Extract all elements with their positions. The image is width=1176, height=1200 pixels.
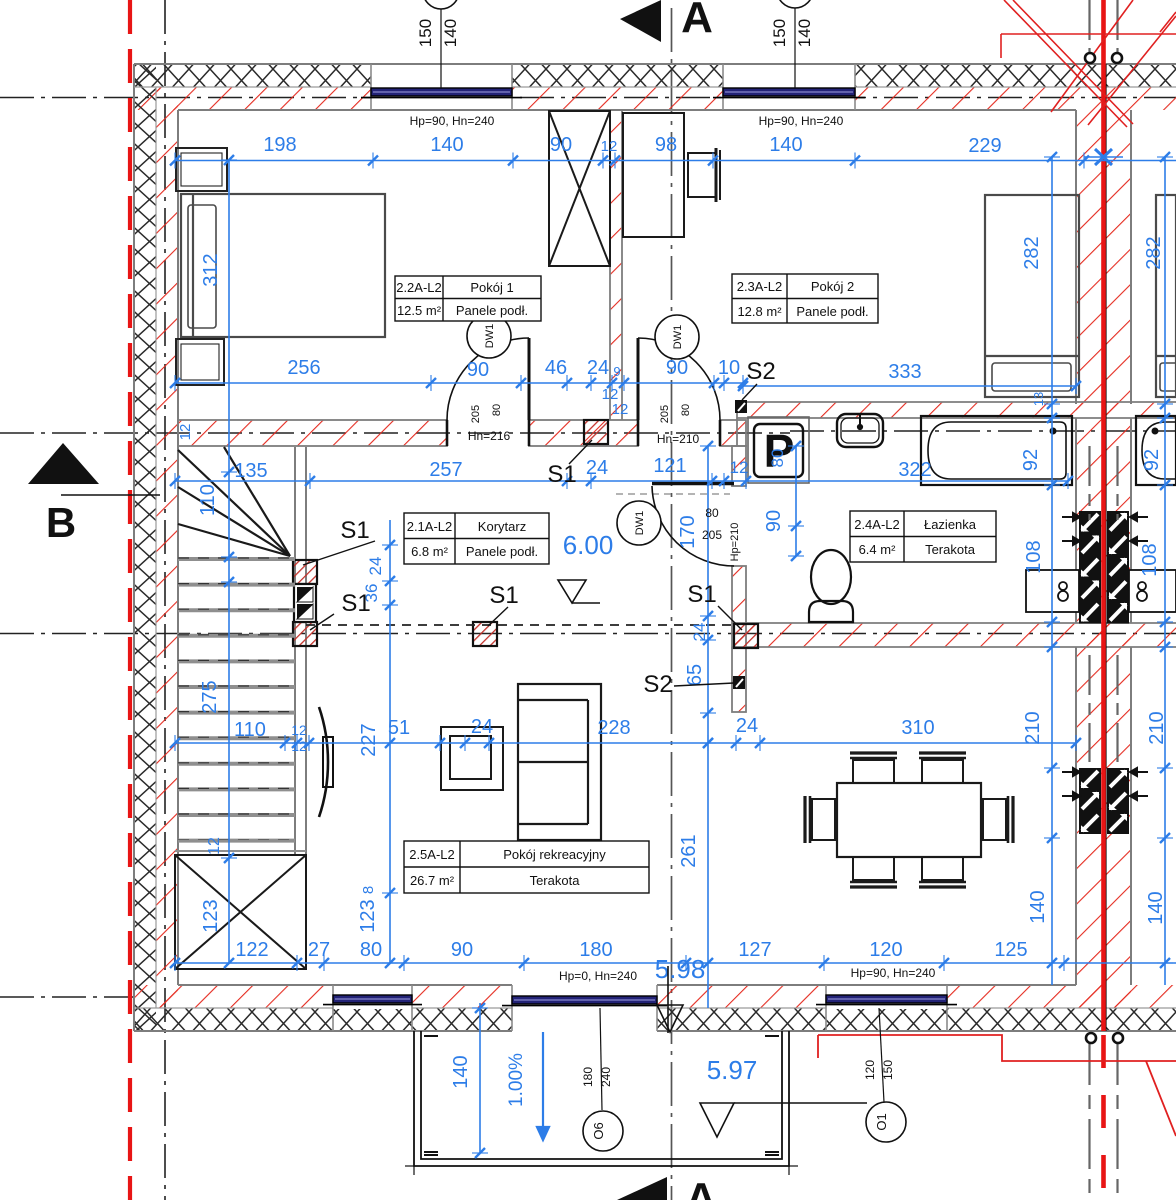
svg-text:90: 90: [763, 510, 785, 532]
svg-text:90: 90: [467, 359, 489, 381]
svg-text:Hp=210: Hp=210: [729, 523, 741, 562]
svg-text:Panele podł.: Panele podł.: [456, 303, 528, 318]
svg-text:98: 98: [655, 134, 677, 156]
svg-text:24: 24: [690, 623, 709, 642]
svg-text:DW1: DW1: [634, 511, 646, 535]
svg-text:150: 150: [770, 19, 789, 47]
svg-text:198: 198: [263, 134, 296, 156]
svg-text:2.5A-L2: 2.5A-L2: [409, 847, 455, 862]
svg-text:333: 333: [888, 361, 921, 383]
svg-text:Terakota: Terakota: [530, 873, 581, 888]
svg-text:24: 24: [587, 357, 609, 379]
svg-text:140: 140: [795, 19, 814, 47]
svg-text:Hn=210: Hn=210: [657, 432, 700, 446]
svg-text:229: 229: [968, 135, 1001, 157]
svg-text:275: 275: [199, 680, 221, 713]
svg-text:DW1: DW1: [672, 325, 684, 349]
svg-text:12: 12: [206, 837, 223, 855]
svg-text:O6: O6: [591, 1122, 606, 1139]
svg-text:A: A: [681, 0, 713, 42]
svg-text:150: 150: [416, 19, 435, 47]
svg-text:310: 310: [901, 717, 934, 739]
svg-text:92: 92: [1141, 449, 1163, 471]
svg-text:A: A: [685, 1174, 717, 1200]
svg-text:140: 140: [441, 19, 460, 47]
svg-text:121: 121: [653, 455, 686, 477]
svg-text:12: 12: [291, 722, 307, 738]
svg-text:205: 205: [702, 528, 722, 542]
svg-text:24: 24: [586, 457, 608, 479]
svg-text:80: 80: [491, 404, 503, 416]
svg-text:180: 180: [579, 939, 612, 961]
svg-text:282: 282: [1143, 236, 1165, 269]
svg-text:12: 12: [612, 401, 629, 418]
svg-text:12: 12: [601, 138, 618, 155]
svg-text:Pokój rekreacyjny: Pokój rekreacyjny: [503, 847, 606, 862]
svg-text:92: 92: [1020, 449, 1042, 471]
svg-text:DW1: DW1: [484, 324, 496, 348]
svg-text:Korytarz: Korytarz: [478, 519, 526, 534]
svg-text:125: 125: [994, 939, 1027, 961]
svg-text:205: 205: [470, 405, 482, 423]
svg-text:140: 140: [769, 134, 802, 156]
svg-text:282: 282: [1021, 236, 1043, 269]
svg-text:170: 170: [677, 515, 699, 548]
svg-text:140: 140: [450, 1055, 472, 1088]
svg-text:90: 90: [666, 357, 688, 379]
svg-text:Panele podł.: Panele podł.: [466, 544, 538, 559]
svg-text:5.98: 5.98: [655, 954, 706, 984]
svg-text:6.00: 6.00: [563, 530, 614, 560]
svg-text:80: 80: [360, 939, 382, 961]
svg-text:S2: S2: [643, 671, 672, 698]
svg-text:12: 12: [291, 738, 307, 754]
svg-text:S1: S1: [340, 517, 369, 544]
svg-text:13: 13: [1031, 392, 1046, 406]
svg-text:S1: S1: [341, 590, 370, 617]
svg-text:2.2A-L2: 2.2A-L2: [396, 280, 442, 295]
svg-text:S1: S1: [547, 461, 576, 488]
svg-text:24: 24: [471, 716, 493, 738]
svg-text:140: 140: [1145, 891, 1167, 924]
svg-text:80: 80: [768, 449, 787, 468]
svg-text:261: 261: [678, 834, 700, 867]
svg-text:120: 120: [869, 939, 902, 961]
svg-text:108: 108: [1139, 543, 1161, 576]
svg-text:5.97: 5.97: [707, 1055, 758, 1085]
svg-text:140: 140: [430, 134, 463, 156]
svg-text:46: 46: [545, 357, 567, 379]
svg-text:312: 312: [200, 253, 222, 286]
svg-text:12: 12: [730, 458, 749, 477]
svg-text:90: 90: [550, 134, 572, 156]
svg-text:80: 80: [705, 506, 719, 520]
svg-text:2.4A-L2: 2.4A-L2: [854, 517, 900, 532]
svg-text:Terakota: Terakota: [925, 542, 976, 557]
svg-text:135: 135: [234, 460, 267, 482]
svg-text:Pokój 2: Pokój 2: [811, 279, 854, 294]
svg-text:123: 123: [357, 899, 379, 932]
svg-text:2.1A-L2: 2.1A-L2: [407, 519, 453, 534]
svg-text:123: 123: [200, 899, 222, 932]
svg-text:90: 90: [451, 939, 473, 961]
svg-text:26.7 m²: 26.7 m²: [410, 873, 455, 888]
svg-text:51: 51: [388, 717, 410, 739]
svg-text:12.5 m²: 12.5 m²: [397, 303, 442, 318]
svg-text:Hn=216: Hn=216: [468, 429, 511, 443]
svg-text:S1: S1: [489, 582, 518, 609]
svg-text:80: 80: [680, 404, 692, 416]
svg-text:257: 257: [429, 459, 462, 481]
svg-text:256: 256: [287, 357, 320, 379]
svg-text:108: 108: [1023, 540, 1045, 573]
svg-text:10: 10: [718, 357, 740, 379]
svg-text:O1: O1: [874, 1113, 889, 1130]
svg-text:B: B: [46, 499, 76, 546]
svg-text:2.3A-L2: 2.3A-L2: [737, 279, 783, 294]
svg-text:322: 322: [898, 459, 931, 481]
svg-text:24: 24: [736, 715, 758, 737]
svg-text:180: 180: [581, 1067, 595, 1087]
svg-text:Hp=90, Hn=240: Hp=90, Hn=240: [759, 114, 844, 128]
svg-text:9: 9: [613, 364, 620, 379]
svg-text:24: 24: [366, 557, 385, 576]
svg-text:150: 150: [881, 1060, 895, 1080]
svg-text:210: 210: [1146, 711, 1168, 744]
svg-text:Pokój 1: Pokój 1: [470, 280, 513, 295]
svg-text:27: 27: [308, 939, 330, 961]
svg-text:Hp=90, Hn=240: Hp=90, Hn=240: [851, 966, 936, 980]
svg-text:S2: S2: [746, 358, 775, 385]
svg-text:Łazienka: Łazienka: [924, 517, 977, 532]
svg-text:Hp=90, Hn=240: Hp=90, Hn=240: [410, 114, 495, 128]
svg-text:12.8 m²: 12.8 m²: [737, 304, 782, 319]
svg-text:210: 210: [1022, 711, 1044, 744]
svg-text:1.00%: 1.00%: [506, 1053, 527, 1107]
svg-text:127: 127: [738, 939, 771, 961]
svg-text:120: 120: [863, 1060, 877, 1080]
svg-text:12: 12: [177, 424, 194, 441]
svg-text:140: 140: [1027, 890, 1049, 923]
svg-text:65: 65: [684, 664, 706, 686]
svg-text:240: 240: [599, 1067, 613, 1087]
svg-text:Panele podł.: Panele podł.: [796, 304, 868, 319]
svg-text:122: 122: [235, 939, 268, 961]
svg-text:110: 110: [197, 484, 219, 516]
svg-text:228: 228: [597, 717, 630, 739]
svg-text:8: 8: [360, 886, 377, 894]
svg-text:205: 205: [659, 405, 671, 423]
svg-text:110: 110: [234, 719, 266, 741]
svg-text:S1: S1: [687, 581, 716, 608]
svg-text:227: 227: [358, 723, 380, 756]
svg-text:6.8 m²: 6.8 m²: [411, 544, 449, 559]
svg-text:Hp=0, Hn=240: Hp=0, Hn=240: [559, 969, 637, 983]
svg-text:6.4 m²: 6.4 m²: [859, 542, 897, 557]
